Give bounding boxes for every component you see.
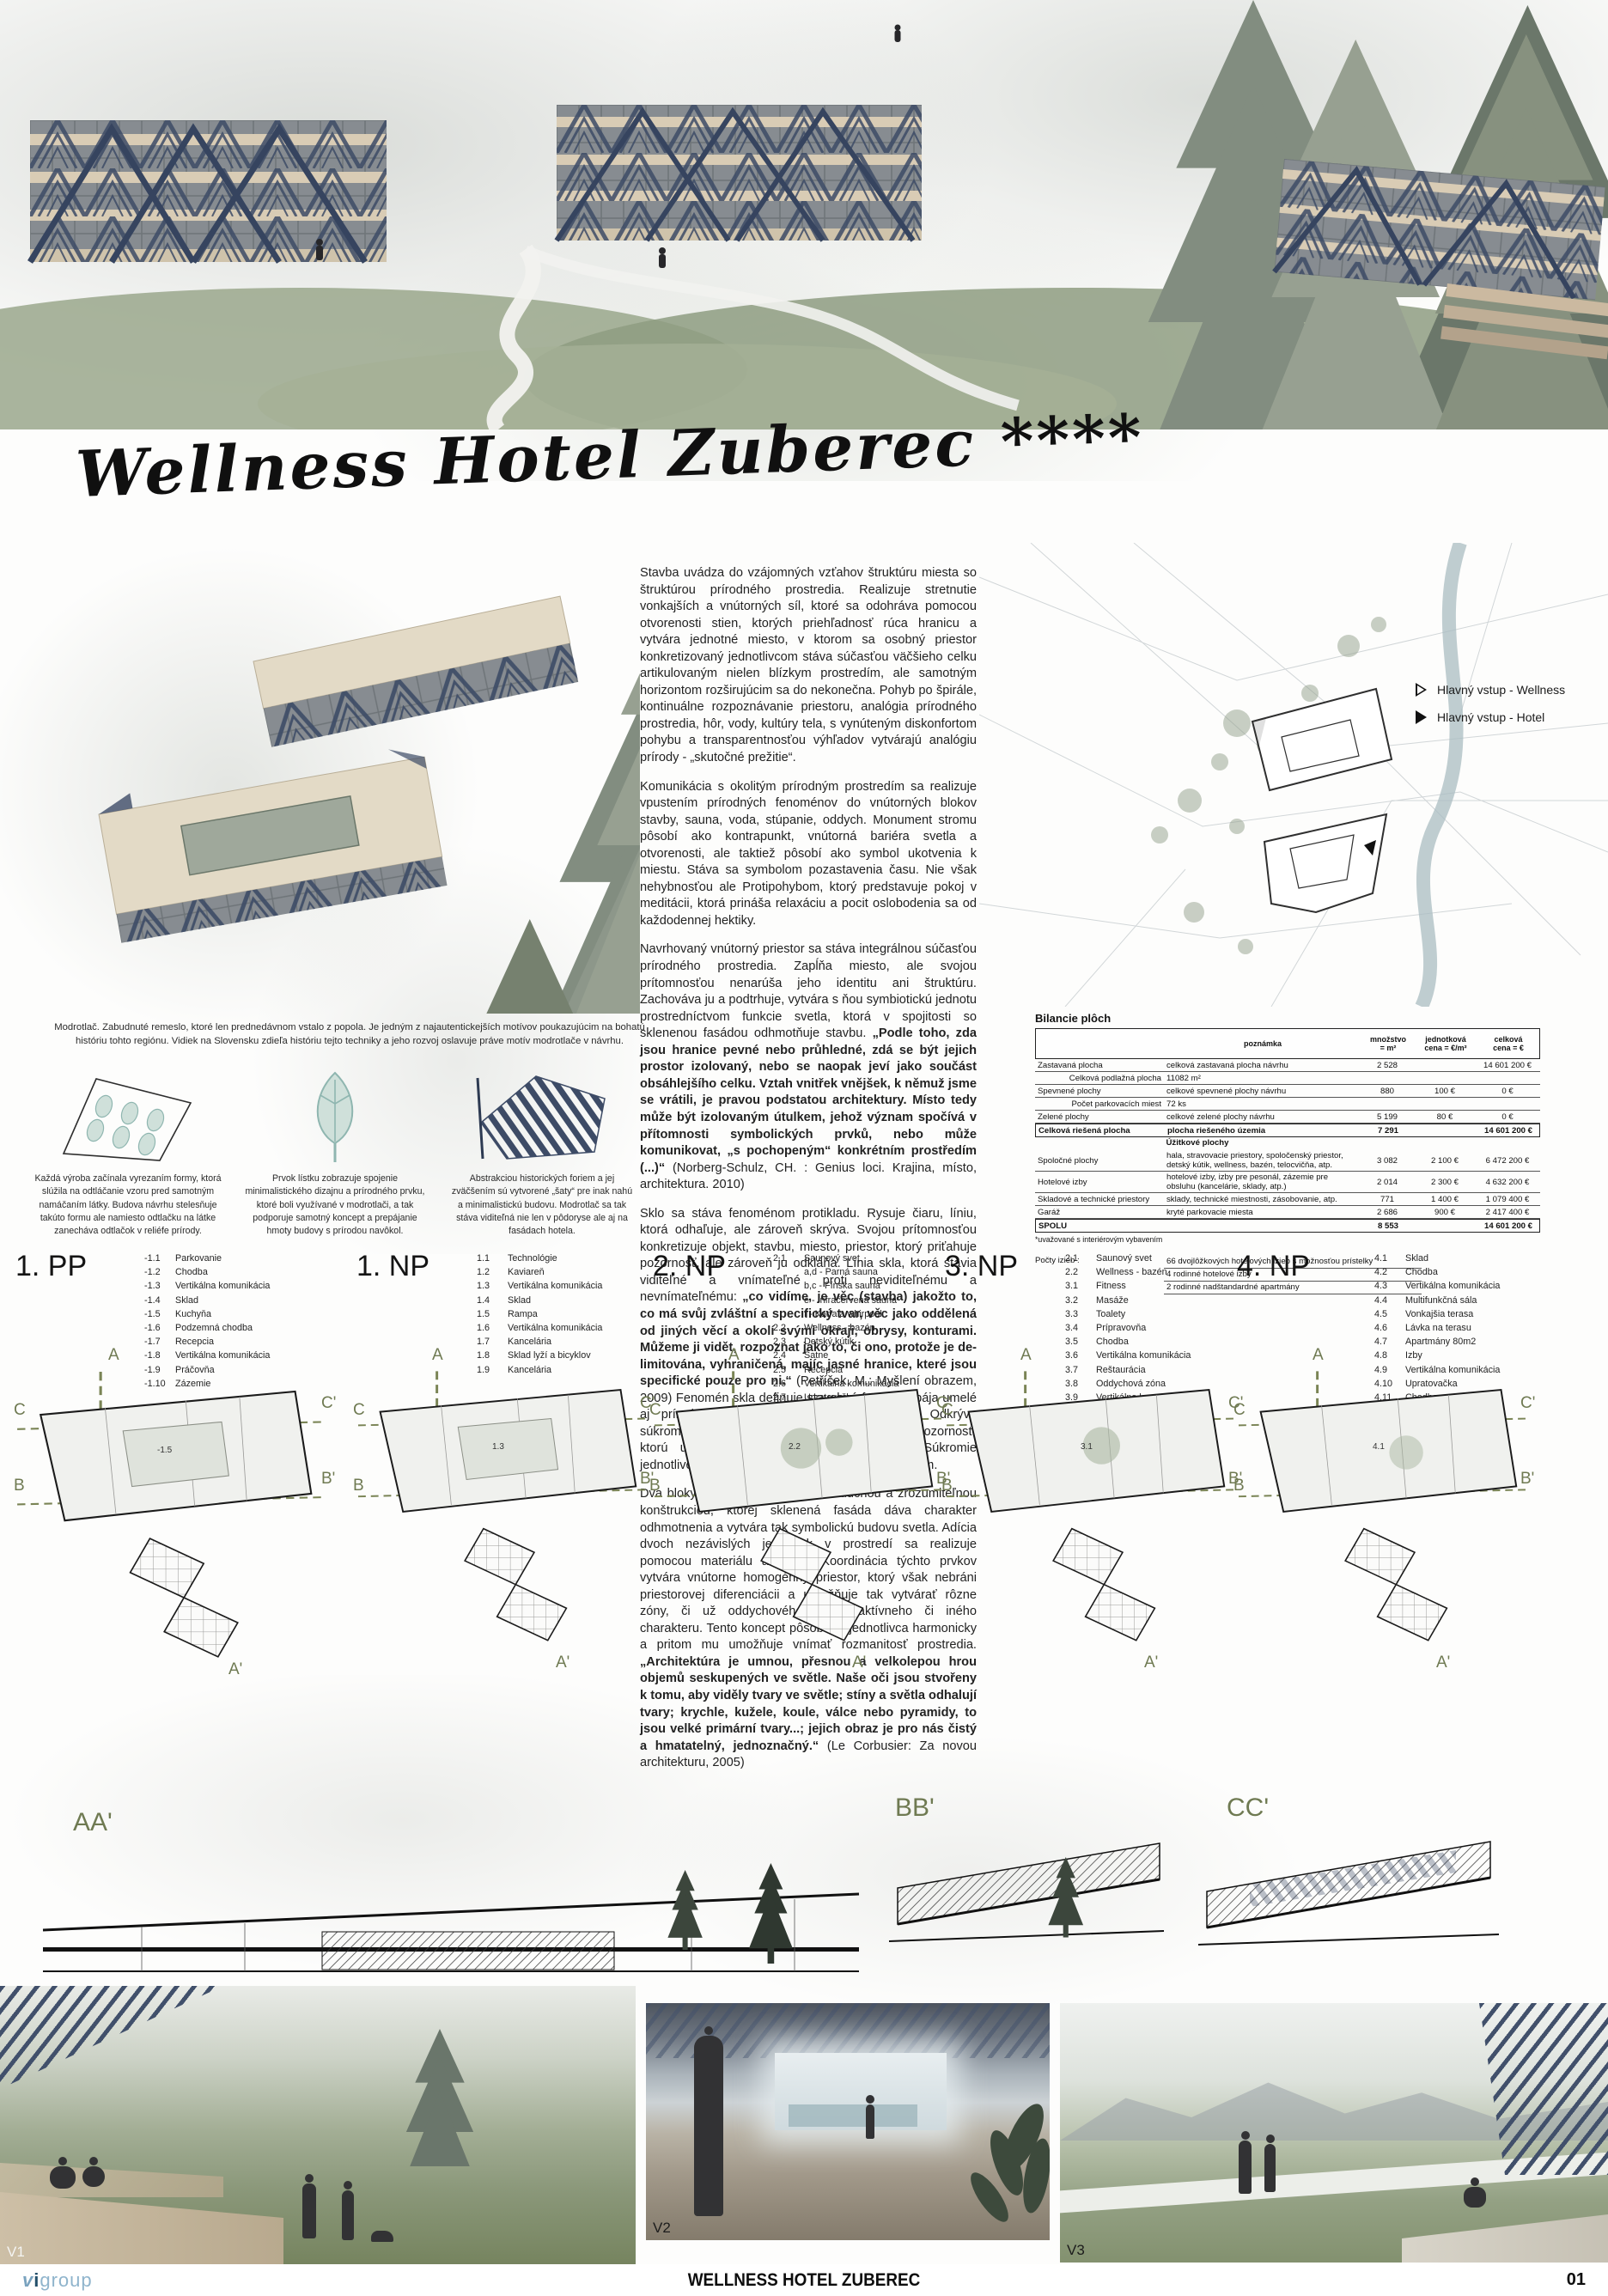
row-quantity: 3 082 [1360,1155,1415,1166]
table-row: Spoločné plochy hala, stravovacie priest… [1035,1150,1540,1172]
table-header-row: poznámka množstvo = m² jednotková cena =… [1035,1028,1540,1059]
row-name: Garáž [1035,1207,1164,1218]
plan-1np: 1. NP 1.1Technológie1.2Kaviareň1.3Vertik… [356,1250,649,1714]
row-name: Spoločné plochy [1035,1155,1164,1166]
siteplan-hotel-block [1264,814,1386,912]
section-marker-c2: C' [1520,1394,1535,1413]
sitting-person-silhouette [1464,2187,1486,2208]
floor-plans-row: 1. PP -1.1Parkovanie-1.2Chodba-1.3Vertik… [0,1250,1608,1714]
legend-label: Hlavný vstup - Wellness [1437,683,1565,697]
legend-item: 1.1Technológie [477,1252,602,1265]
section-marker-c: C [941,1401,953,1420]
row-quantity: 2 528 [1360,1060,1415,1071]
logo-v-mark: v [22,2269,33,2291]
standing-person-silhouette [342,2190,354,2240]
row-unit-price [1416,1225,1476,1227]
row-quantity: 2 014 [1360,1177,1415,1188]
section-marker-b: B [941,1477,953,1495]
table-row: Celková riešená plocha plocha riešeného … [1035,1124,1540,1137]
plan-4np: 4. NP 4.1Sklad4.2Chodba4.3Vertikálna kom… [1237,1250,1598,1714]
left-building [30,120,387,262]
row-quantity: 880 [1360,1086,1415,1097]
legend-item: 4.2Chodba [1374,1265,1500,1279]
site-plan-legend: Hlavný vstup - Wellness Hlavný vstup - H… [1416,683,1565,738]
legend-item: -1.5Kuchyňa [144,1307,270,1321]
section-aa-drawing [39,1851,863,1980]
row-quantity: 771 [1360,1194,1415,1205]
floor-plan-drawing [15,1361,325,1671]
row-unit-price: 2 100 € [1415,1155,1475,1166]
legend-item: -1.7Recepcia [144,1335,270,1349]
row-name: Zelené plochy [1035,1111,1164,1123]
plan-legend: 1.1Technológie1.2Kaviareň1.3Vertikálna k… [477,1252,602,1377]
legend-item: 4.1Sklad [1374,1252,1500,1265]
abstract-pattern-sketch [469,1069,615,1164]
legend-item: 3.4Prípravovňa [1065,1321,1191,1335]
section-marker-a2: A' [852,1653,866,1672]
floor-plan-drawing [356,1361,649,1653]
section-marker-a: A [728,1346,740,1365]
legend-item: -1.6Podzemná chodba [144,1321,270,1335]
concept-abstraction: Abstrakciou historických foriem a jej zv… [448,1069,636,1239]
row-total-price [1475,1103,1540,1105]
legend-entry-wellness: Hlavný vstup - Wellness [1416,683,1565,697]
section-marker-a: A [1020,1346,1032,1365]
room-number-label: 4.1 [1373,1442,1385,1452]
section-marker-a: A [108,1346,119,1365]
legend-item: 4.7Apartmány 80m2 [1374,1335,1500,1349]
plan-1pp: 1. PP -1.1Parkovanie-1.2Chodba-1.3Vertik… [15,1250,346,1714]
legend-item: f - Kaďa a whirpool [773,1307,898,1321]
section-label-aa: AA' [73,1808,113,1837]
row-note: celkové spevnené plochy návrhu [1164,1086,1360,1097]
concept-stamp: Každá výroba začínala vyrezaním formy, k… [34,1069,222,1239]
table-row: Celková podlažná plocha 11082 m² [1035,1072,1540,1085]
foreground-person-silhouette [694,2036,723,2216]
table-row: Skladové a technické priestory sklady, t… [1035,1193,1540,1206]
legend-item: 1.6Vertikálna komunikácia [477,1321,602,1335]
row-quantity: 8 553 [1361,1221,1416,1232]
hero-illustration [0,0,1608,429]
row-total-price: 14 601 200 € [1475,1060,1540,1071]
section-marker-c: C [353,1401,365,1420]
legend-item: b,c - Fínska sauna [773,1279,898,1293]
render-v1: V1 [0,1986,636,2264]
header-qty: množstvo = m² [1361,1035,1416,1052]
row-unit-price: 2 300 € [1415,1177,1475,1188]
row-total-price [1035,1148,1164,1150]
dog-silhouette [371,2231,393,2242]
upper-slab-building [253,596,578,747]
plant-silhouette [929,2086,1050,2240]
floor-plan-drawing [653,1361,945,1653]
table-row: Garáž kryté parkovacie miesta 2 686 900 … [1035,1206,1540,1219]
row-name: Spevnené plochy [1035,1086,1164,1097]
legend-item: 2.2Wellness - bazén [1065,1265,1191,1279]
legend-item: -1.4Sklad [144,1294,270,1307]
table-row: Počet parkovacích miest 72 ks [1035,1098,1540,1111]
distant-person-silhouette [866,2104,874,2139]
section-bb-drawing [885,1828,1168,1974]
floor-plan-drawing [945,1361,1237,1653]
section-marker-a2: A' [556,1653,569,1672]
legend-item: 4.3Vertikálna komunikácia [1374,1279,1500,1293]
standing-person-silhouette [1264,2144,1276,2192]
table-title: Bilancie plôch [1035,1012,1540,1025]
row-note: sklady, technické miestnosti, zásobovani… [1164,1194,1360,1205]
row-total-price: 0 € [1475,1111,1540,1123]
view-label: V1 [7,2244,25,2261]
row-note: celková zastavaná plocha návrhu [1164,1060,1360,1071]
row-name: Hotelové izby [1035,1177,1164,1188]
row-quantity [1360,1077,1415,1079]
room-number-label: -1.5 [157,1446,172,1455]
row-quantity: 2 686 [1360,1207,1415,1218]
concept-caption: Prvok lístku zobrazuje spojenie minimali… [241,1172,429,1239]
row-unit-price [1415,1103,1475,1105]
entrance-hotel-triangle-icon [1416,710,1427,724]
row-unit-price: 1 400 € [1415,1194,1475,1205]
row-note: 72 ks [1164,1099,1360,1110]
row-total-price: 14 601 200 € [1476,1221,1541,1232]
row-quantity: 7 291 [1361,1125,1416,1136]
row-quantity [1360,1103,1415,1105]
logo-word: group [40,2269,92,2291]
legend-item: 1.4Sklad [477,1294,602,1307]
row-quantity [1415,1142,1475,1144]
standing-person-silhouette [302,2183,316,2238]
pool-water [789,2104,917,2127]
essay-paragraph: Komunikácia s okolitým prírodným prostre… [640,779,977,930]
legend-entry-hotel: Hlavný vstup - Hotel [1416,710,1565,724]
row-quantity: 5 199 [1360,1111,1415,1123]
row-note: hotelové izby, izby pre pesonál, zázemie… [1164,1172,1360,1192]
legend-item: -1.3Vertikálna komunikácia [144,1279,270,1293]
section-marker-a2: A' [1436,1653,1450,1672]
plan-3np: 3. NP 2.1Saunový svet2.2Wellness - bazén… [945,1250,1237,1714]
view-label: V3 [1067,2242,1085,2259]
header-total-price: celková cena = € [1476,1035,1541,1052]
essay-paragraph: Stavba uvádza do vzájomných vzťahov štru… [640,565,977,767]
legend-item: 1.5Rampa [477,1307,602,1321]
table-row: Spevnené plochy celkové spevnené plochy … [1035,1085,1540,1098]
row-total-price: 4 632 200 € [1475,1177,1540,1188]
legend-item: 2.2Wellness - bazén [773,1321,898,1335]
room-number-label: 2.2 [789,1442,801,1452]
row-name: SPOLU [1036,1221,1165,1232]
row-total-price: 14 601 200 € [1476,1125,1541,1136]
row-unit-price: 900 € [1415,1207,1475,1218]
legend-item: 1.2Kaviareň [477,1265,602,1279]
section-marker-a2: A' [228,1660,242,1679]
standing-person-silhouette [1239,2141,1252,2194]
header-note: poznámka [1165,1039,1361,1048]
row-name: Skladové a technické priestory [1035,1194,1164,1205]
row-unit-price [1475,1142,1540,1144]
hero-render [0,0,1608,429]
section-marker-b: B [649,1477,661,1495]
row-note: celkové zelené plochy návrhu [1164,1111,1360,1123]
section-label-bb: BB' [895,1794,935,1823]
table-footnote: *uvažované s interiérovým vybavením [1035,1235,1540,1244]
legend-item: 2.1Saunový svet [773,1252,898,1265]
table-row: Úžitkové plochy [1035,1137,1540,1150]
row-note [1360,1142,1415,1144]
legend-item: 2.1Saunový svet [1065,1252,1191,1265]
section-marker-c: C [1233,1401,1246,1420]
concept-row: Každá výroba začínala vyrezaním formy, k… [34,1069,636,1239]
row-note: plocha riešeného územia [1165,1125,1361,1136]
legend-item: 2.3Detský kútik [773,1335,898,1349]
section-marker-a2: A' [1144,1653,1158,1672]
table-body: Zastavaná plocha celková zastavaná ploch… [1035,1059,1540,1233]
essay-paragraph: Navrhovaný vnútorný priestor sa stáva in… [640,941,977,1193]
render-v3: V3 [1060,2003,1608,2263]
row-name: Celková riešená plocha [1036,1125,1165,1136]
concept-caption: Abstrakciou historických foriem a jej zv… [448,1172,636,1239]
section-marker-b: B [14,1477,25,1495]
legend-label: Hlavný vstup - Hotel [1437,710,1544,724]
section-marker-c: C [14,1401,26,1420]
section-marker-b: B [1233,1477,1245,1495]
section-marker-b: B [353,1477,364,1495]
section-marker-c2: C' [321,1394,336,1413]
section-marker-a: A [1313,1346,1324,1365]
render-trees [120,1995,481,2166]
row-note: 11082 m² [1164,1073,1360,1084]
legend-item: 3.3Toalety [1065,1307,1191,1321]
row-note: hala, stravovacie priestory, spoločenský… [1164,1150,1360,1171]
row-total-price: 2 417 400 € [1475,1207,1540,1218]
page-number: 01 [1567,2270,1586,2290]
row-name: Celková podlažná plocha [1035,1073,1164,1084]
center-building [557,105,922,241]
legend-item: e - Infračervená sauna [773,1294,898,1307]
row-name: Zastavaná plocha [1035,1060,1164,1071]
row-note [1165,1225,1361,1227]
plan-2np: 2. NP 2.1Saunový sveta,d - Parná saunab,… [653,1250,945,1714]
legend-item: 3.1Fitness [1065,1279,1191,1293]
footer-project-title: WELLNESS HOTEL ZUBEREC [688,2270,921,2291]
row-unit-price: 100 € [1415,1086,1475,1097]
axonometric-illustration [0,558,640,1014]
legend-item: 4.4Multifunkčná sála [1374,1294,1500,1307]
legend-item: 4.6Lávka na terasu [1374,1321,1500,1335]
legend-item: 4.5Vonkajšia terasa [1374,1307,1500,1321]
room-number-label: 1.3 [492,1442,504,1452]
floor-plan-drawing [1237,1361,1529,1653]
legend-item: 3.2Masáže [1065,1294,1191,1307]
header-unit-price: jednotková cena = €/m² [1416,1035,1476,1052]
render-v2: V2 [646,2003,1050,2240]
section-label-cc: CC' [1227,1794,1269,1823]
row-total-price: 1 079 400 € [1475,1194,1540,1205]
room-number-label: 3.1 [1081,1442,1093,1452]
concept-caption: Každá výroba začínala vyrezaním formy, k… [34,1172,222,1239]
table-row: Hotelové izby hotelové izby, izby pre pe… [1035,1172,1540,1193]
axon-caption: Modrotlač. Zabudnuté remeslo, ktoré len … [53,1020,646,1049]
leaf-sketch [288,1069,382,1164]
legend-item: a,d - Parná sauna [773,1265,898,1279]
row-total-price: 6 472 200 € [1475,1155,1540,1166]
footer-bar: vigroup WELLNESS HOTEL ZUBEREC 01 [0,2264,1608,2296]
stamp-form-sketch [51,1074,205,1164]
row-name: Počet parkovacích miest [1035,1099,1164,1110]
table-row: Zelené plochy celkové zelené plochy návr… [1035,1111,1540,1124]
studio-logo: vigroup [22,2269,93,2292]
legend-item: -1.2Chodba [144,1265,270,1279]
site-plan-illustration [979,543,1608,1007]
table-row: Zastavaná plocha celková zastavaná ploch… [1035,1059,1540,1072]
row-note: kryté parkovacie miesta [1164,1207,1360,1218]
entrance-wellness-triangle-icon [1416,683,1427,697]
sitting-person-silhouette [50,2166,76,2189]
row-name: Úžitkové plochy [1035,1137,1360,1148]
siteplan-wellness-block [1252,689,1392,790]
legend-item: 3.5Chodba [1065,1335,1191,1349]
row-total-price [1475,1077,1540,1079]
legend-item: 1.3Vertikálna komunikácia [477,1279,602,1293]
row-unit-price: 80 € [1415,1111,1475,1123]
concept-leaf: Prvok lístku zobrazuje spojenie minimali… [241,1069,429,1239]
presentation-board: Wellness Hotel Zuberec **** Modrotlač. Z… [0,0,1608,2296]
row-unit-price [1416,1130,1476,1131]
row-unit-price [1415,1064,1475,1066]
legend-item: 1.7Kancelária [477,1335,602,1349]
section-marker-b2: B' [1520,1470,1534,1489]
legend-item: -1.1Parkovanie [144,1252,270,1265]
sitting-person-silhouette [82,2166,105,2187]
table-row: SPOLU 8 553 14 601 200 € [1035,1219,1540,1233]
section-marker-b2: B' [321,1470,335,1489]
section-cc-drawing [1198,1828,1499,1974]
section-marker-c: C [649,1401,661,1420]
view-label: V2 [653,2220,671,2237]
row-unit-price [1415,1077,1475,1079]
courtyard-building [96,741,448,942]
row-total-price: 0 € [1475,1086,1540,1097]
section-marker-a: A [432,1346,443,1365]
